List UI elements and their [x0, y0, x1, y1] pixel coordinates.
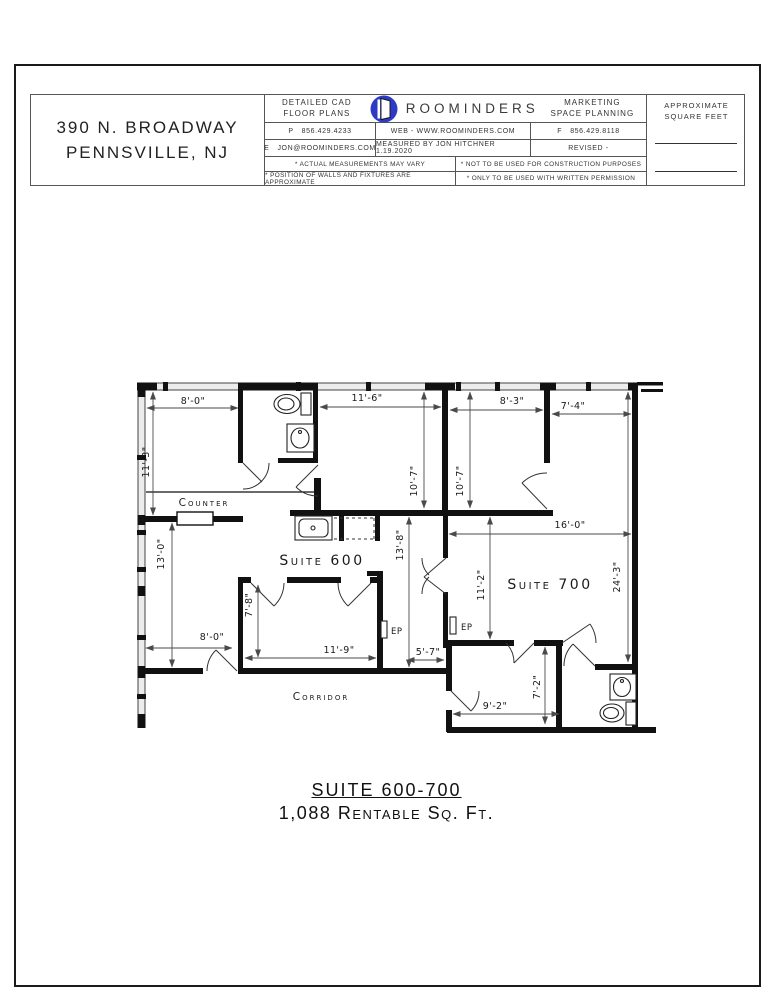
toilet-icon	[600, 702, 636, 725]
dim-suite700-left-depth: 11'-2"	[476, 570, 487, 601]
window-wall-top	[137, 382, 663, 392]
dim-rear-room-width: 9'-2"	[483, 701, 508, 712]
dim-far-right-width: 7'-4"	[561, 401, 586, 412]
dim-reception-width: 8'-0"	[200, 632, 225, 643]
dim-suite700-depth: 24'-3"	[612, 562, 623, 593]
sink-icon	[610, 674, 636, 700]
dim-hall-depth: 13'-8"	[395, 530, 406, 561]
toilet-icon	[274, 393, 311, 415]
rentable-area: 1,088 Rentable Sq. Ft.	[0, 803, 773, 824]
counter-label: Counter	[179, 497, 230, 509]
dim-top-right-depth: 10'-7"	[455, 466, 466, 497]
ep-label: EP	[391, 627, 403, 637]
dim-hall-width: 5'-7"	[416, 647, 441, 658]
dim-top-left-depth: 11'-3"	[141, 447, 152, 478]
dim-mid-room-width: 11'-9"	[324, 645, 355, 656]
floor-plan-sheet: 390 N. BROADWAY PENNSVILLE, NJ DETAILED …	[0, 0, 773, 1000]
dim-rear-room-depth: 7'-2"	[532, 675, 543, 700]
dim-top-mid-depth: 10'-7"	[409, 466, 420, 497]
dim-top-right-width: 8'-3"	[500, 396, 525, 407]
counter-passthrough	[177, 512, 213, 525]
suite-600-label: Suite 600	[279, 553, 364, 569]
sink-icon	[287, 424, 314, 452]
dim-top-left-width: 8'-0"	[181, 396, 206, 407]
floor-plan-drawing: 8'-0" 11'-3" 11'-6" 8'-3" 7'-4" 10'-7" 1…	[0, 0, 773, 1000]
dim-reception-depth: 13'-0"	[156, 539, 167, 570]
suite-title: SUITE 600-700	[0, 780, 773, 801]
dim-mid-room-depth: 7'-8"	[244, 593, 255, 618]
dim-top-mid-width: 11'-6"	[352, 393, 383, 404]
kitchen-sink-icon	[295, 516, 374, 540]
suite-700-label: Suite 700	[507, 577, 592, 593]
interior-walls	[145, 390, 637, 732]
window-wall-left	[137, 383, 146, 728]
ep-label: EP	[461, 623, 473, 633]
dim-suite700-width: 16'-0"	[555, 520, 586, 531]
corridor-label: Corridor	[293, 691, 349, 703]
